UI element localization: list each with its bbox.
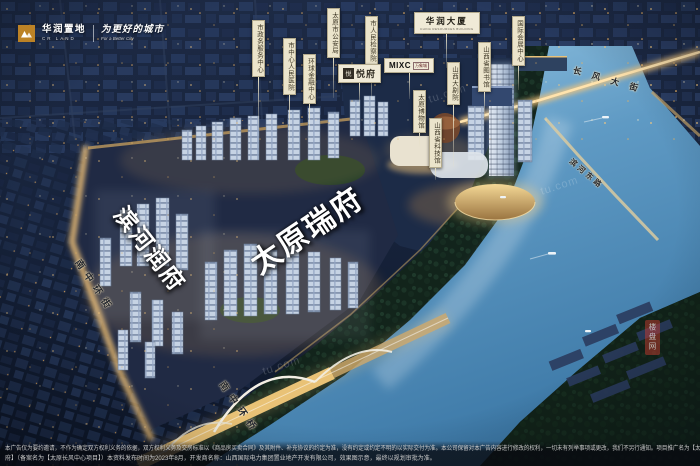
mixc-logo: MIXC: [389, 61, 411, 70]
flag-label: 市中心人民医院: [283, 38, 296, 95]
flag-convention-center: 国际会展中心: [512, 16, 525, 90]
brand-divider: [93, 25, 94, 42]
flag-label: 国际会展中心: [512, 16, 525, 66]
flag-label: 市人民检察院: [365, 16, 378, 66]
flag-science-museum: 山西省科技馆: [429, 118, 442, 180]
brand-name-en: CR LAND: [42, 36, 86, 41]
cr-land-logo-icon: [18, 25, 35, 42]
flag-pole: [518, 66, 519, 90]
cr-tower-caption: CHINA RESOURCES BUILDING: [420, 27, 474, 31]
brand-bar: 华润置地 CR LAND 为更好的城市 For a Better City: [18, 25, 164, 42]
brand-slogan-en: For a Better City: [101, 36, 164, 41]
sign-cr-tower: 华润大厦 CHINA RESOURCES BUILDING: [414, 12, 480, 68]
flag-label: 环球金融中心: [303, 54, 316, 104]
flag-pole: [453, 105, 454, 167]
flag-label: 太原市公安局: [327, 8, 340, 58]
cr-tower-name: 华润大厦: [426, 15, 468, 27]
flag-label: 市政务服务中心: [252, 20, 265, 77]
flag-label: 山西省科技馆: [429, 118, 442, 168]
flag-pole: [484, 92, 485, 114]
flag-pole: [333, 58, 334, 98]
flag-global-financial-center: 环球金融中心: [303, 54, 316, 134]
flag-peoples-hospital: 市中心人民医院: [283, 38, 296, 141]
flag-provincial-library: 山西省图书馆: [478, 42, 491, 114]
disclaimer: 本广告仅为要约邀请，不作为确定双方权利义务的依据，双方权利义务及交房标准以《商品…: [0, 441, 700, 466]
flag-pole: [289, 95, 290, 141]
flag-grand-theatre: 山西大剧院: [447, 62, 460, 167]
yuefu-seal-icon: 悦: [343, 68, 354, 79]
sign-yuefu: 悦 悦府: [338, 64, 381, 105]
flag-pole: [419, 133, 420, 147]
flag-civic-service-center: 市政务服务中心: [252, 20, 265, 129]
flag-pole: [435, 168, 436, 180]
yuefu-name: 悦府: [356, 67, 376, 80]
flag-label: 山西省图书馆: [478, 42, 491, 92]
sign-pole: [359, 83, 360, 105]
flag-pole: [258, 77, 259, 129]
brand-name: 华润置地: [42, 25, 86, 36]
real-estate-ad-canvas: 华润置地 CR LAND 为更好的城市 For a Better City 市政…: [0, 0, 700, 466]
sign-pole: [409, 73, 410, 99]
flag-label: 山西大剧院: [447, 62, 460, 105]
flag-pole: [309, 104, 310, 134]
disclaimer-line-2: 府】（备案名为【太原长风中心项目】）本资料发布时间为2023年8月，开发商名称：…: [5, 455, 695, 465]
sign-pole: [446, 34, 447, 68]
brand-slogan: 为更好的城市: [101, 25, 164, 36]
watermark-badge: 楼盘网: [645, 320, 660, 355]
disclaimer-line-1: 本广告仅为要约邀请，不作为确定双方权利义务的依据，双方权利义务及交房标准以《商品…: [5, 445, 640, 455]
